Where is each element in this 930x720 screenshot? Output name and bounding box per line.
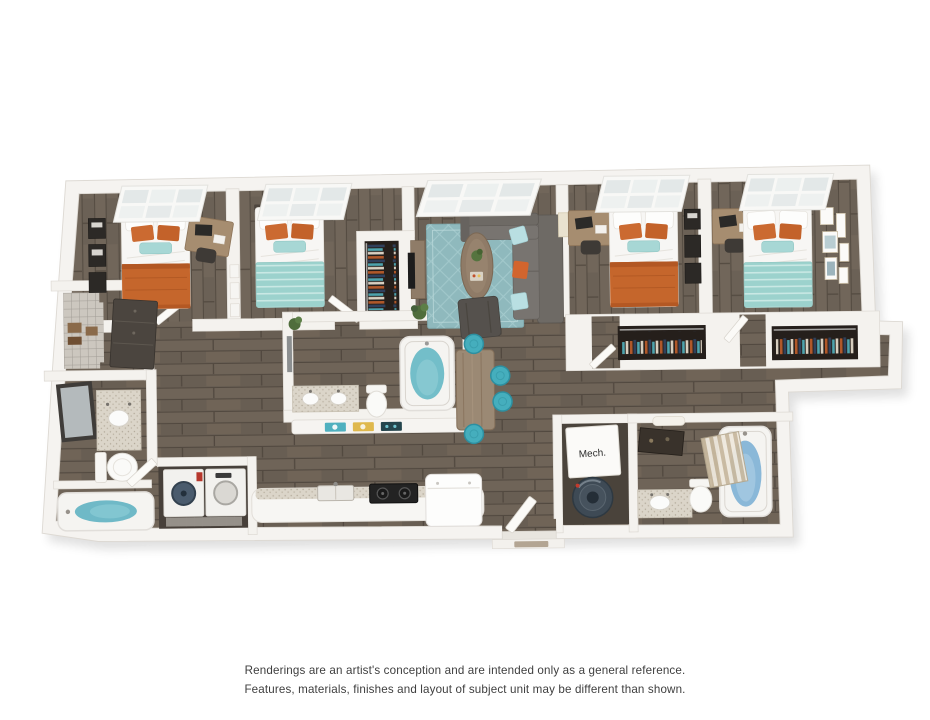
bathtub: [400, 336, 455, 411]
mech-room-label: Mech.: [578, 448, 606, 461]
wall-frame: [684, 209, 700, 229]
wall-frame: [88, 218, 105, 238]
window: [739, 173, 834, 210]
bed2-closet: [356, 231, 415, 322]
bath-mirror: [287, 336, 292, 372]
window: [416, 179, 542, 217]
wall-art: [558, 213, 568, 237]
bathroom-vanity: [638, 489, 692, 518]
wire-shelf: [81, 302, 104, 362]
toilet: [690, 479, 712, 512]
bed4-closet: [772, 325, 858, 360]
toilet: [366, 385, 386, 417]
double-vanity: [292, 385, 358, 412]
wall-frame: [230, 265, 239, 278]
wall-frame: [89, 272, 106, 292]
laundry-closet: [157, 457, 257, 536]
water-heater: [573, 477, 613, 517]
stool: [464, 334, 483, 353]
stool: [493, 392, 512, 411]
mech-unit-box: Mech.: [566, 425, 621, 478]
disclaimer-line-1: Renderings are an artist's conception an…: [0, 662, 930, 681]
bed3-closet: [618, 325, 706, 360]
floor-plan-rendering: Mech.: [38, 165, 912, 555]
ceiling-light: [653, 416, 685, 425]
wall-frame: [685, 263, 701, 283]
wire-basket: [166, 517, 242, 527]
dining-table: [456, 350, 495, 430]
pillow-teal: [510, 292, 528, 310]
bathroom-mirror: [56, 381, 98, 442]
stool: [464, 424, 483, 443]
wall-frame: [230, 283, 239, 299]
wall-bed2-living: [402, 187, 415, 237]
door-mat: [514, 541, 548, 547]
wall-frame: [230, 304, 239, 317]
bed-teal: [742, 204, 813, 308]
stool: [491, 366, 510, 385]
threshold: [502, 531, 556, 540]
window: [595, 175, 690, 212]
washer: [163, 469, 204, 516]
stove-cooktop: [370, 484, 418, 504]
tv: [408, 253, 415, 289]
dresser: [110, 299, 158, 369]
window: [113, 185, 208, 222]
bathtub: [58, 492, 154, 531]
coffee-table: [461, 233, 494, 299]
bathroom-vanity: [96, 390, 141, 451]
wall-frame: [685, 235, 701, 257]
accent-chair: [458, 296, 502, 340]
bath-bench: [638, 428, 684, 456]
dryer: [205, 469, 246, 516]
window: [257, 183, 352, 220]
bed-orange: [608, 203, 679, 307]
floor-plan-image: Mech.: [0, 0, 930, 720]
disclaimer: Renderings are an artist's conception an…: [0, 662, 930, 700]
mech-room: Mech.: [553, 414, 638, 533]
placemat-dark: [381, 422, 402, 431]
pillow-orange: [512, 260, 529, 279]
breakfast-bar: [292, 418, 468, 434]
screenshot-canvas: Mech.: [0, 0, 930, 720]
disclaimer-line-2: Features, materials, finishes and layout…: [0, 681, 930, 700]
tray: [470, 272, 483, 281]
refrigerator: [425, 474, 482, 527]
